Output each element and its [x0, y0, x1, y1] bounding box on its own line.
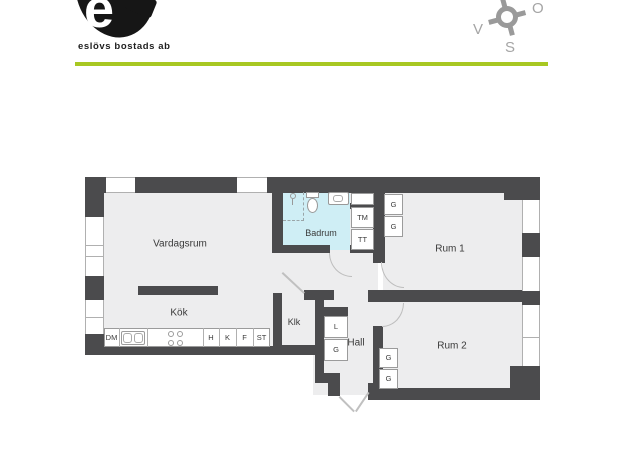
wall-closet-top — [304, 290, 334, 300]
window-left-1-mullion-a — [85, 245, 104, 246]
wall-bottom-room2 — [368, 388, 540, 400]
wall-left-a — [85, 177, 104, 217]
wall-top-b — [135, 177, 237, 193]
window-room1-b — [522, 257, 540, 291]
entry-door-leaf-a — [339, 396, 355, 412]
compass-ring — [496, 6, 518, 28]
counter-label-st: ST — [253, 328, 270, 347]
shower-icon-stem — [292, 199, 293, 205]
logo-wordmark: eslövs bostads ab — [78, 41, 171, 52]
window-left-1 — [85, 217, 104, 276]
wall-top-right-corner — [504, 193, 540, 200]
company-logo: e eslövs bostads ab — [0, 0, 200, 60]
label-hall: Hall — [347, 338, 364, 349]
wall-left-b — [85, 276, 104, 300]
stove-burner-2 — [177, 331, 183, 337]
window-left-2-mullion — [85, 317, 104, 318]
wardrobe-room2-1: G — [379, 348, 398, 368]
floor-livingroom — [95, 185, 280, 351]
wall-bathroom-left — [272, 193, 283, 253]
bathroom-sink-basin — [333, 195, 343, 202]
counter-divider-1 — [119, 328, 120, 347]
wall-room-divider — [368, 290, 522, 302]
wall-bottom-kitchen — [85, 346, 285, 355]
window-room2-mullion — [522, 337, 540, 338]
label-room2: Rum 2 — [437, 341, 466, 352]
stove-burner-3 — [168, 340, 174, 346]
counter-label-f: F — [236, 328, 253, 347]
counter-divider-2 — [147, 328, 148, 347]
counter-label-dm: DM — [104, 328, 119, 347]
stove-burner-4 — [177, 340, 183, 346]
window-left-1-mullion-b — [85, 256, 104, 257]
wardrobe-room1-2: G — [384, 216, 403, 237]
wall-closet-left — [273, 293, 282, 353]
toilet-bowl — [307, 198, 318, 213]
stove-burner-1 — [168, 331, 174, 337]
window-top-1 — [106, 177, 135, 193]
header-accent-rule — [75, 62, 548, 66]
wardrobe-room1-1: G — [384, 194, 403, 215]
dryer-box: TT — [351, 229, 374, 250]
wall-cabinet-top — [315, 307, 348, 316]
label-room1: Rum 1 — [435, 244, 464, 255]
wardrobe-room2-2: G — [379, 369, 398, 389]
wall-right-b — [522, 291, 540, 305]
wall-right-a — [522, 233, 540, 257]
floorplan-page: e eslövs bostads ab V O S — [0, 0, 625, 460]
wall-bathroom-bottom-a — [272, 245, 330, 253]
label-livingroom: Vardagsrum — [153, 239, 207, 250]
compass-south-label: S — [505, 40, 515, 55]
wall-entry-left — [328, 381, 340, 396]
shower-icon — [290, 193, 296, 199]
logo-letter: e — [84, 0, 114, 36]
label-kitchen: Kök — [170, 308, 187, 319]
wall-entry-right — [368, 383, 378, 395]
compass-rose: V O S — [465, 0, 555, 60]
counter-label-h: H — [203, 328, 219, 347]
label-closet: Klk — [288, 317, 301, 327]
sink-basin-right — [134, 333, 143, 343]
window-room2 — [522, 305, 540, 366]
label-bathroom: Badrum — [305, 228, 337, 238]
wall-top-c — [267, 177, 540, 193]
compass-west-label: V — [473, 22, 483, 37]
compass-east-label: O — [532, 1, 544, 16]
counter-label-k: K — [219, 328, 236, 347]
wardrobe-hall: G — [324, 339, 348, 361]
sink-basin-left — [123, 333, 132, 343]
window-room1-a — [522, 200, 540, 233]
window-top-2 — [237, 177, 267, 193]
washer-box: TM — [351, 207, 374, 228]
linen-cabinet-hall: L — [324, 316, 348, 338]
laundry-shelf-box — [351, 193, 374, 205]
kitchen-partition-bar — [138, 286, 218, 295]
